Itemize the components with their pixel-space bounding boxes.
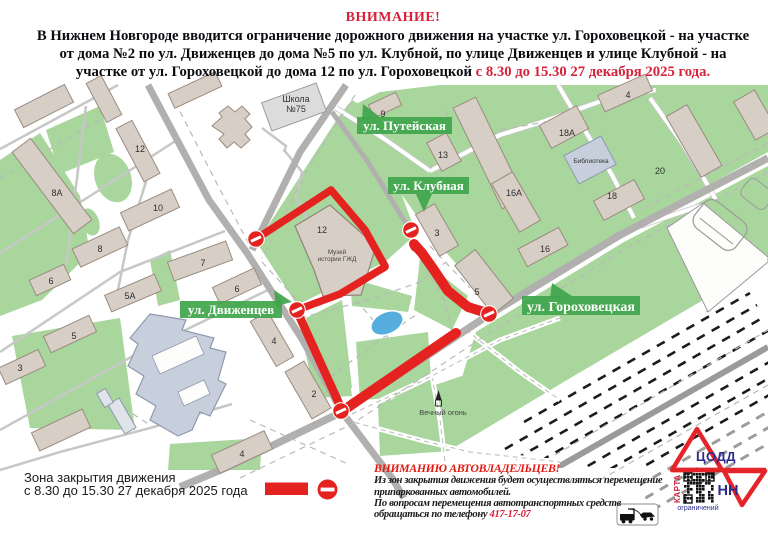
svg-text:18А: 18А bbox=[559, 128, 575, 138]
svg-text:20: 20 bbox=[655, 166, 665, 176]
svg-text:4: 4 bbox=[625, 90, 630, 100]
svg-text:ул. Движенцев: ул. Движенцев bbox=[188, 302, 274, 317]
svg-text:4: 4 bbox=[271, 336, 276, 346]
svg-text:8А: 8А bbox=[51, 188, 62, 198]
svg-text:ул. Гороховецкая: ул. Гороховецкая bbox=[527, 300, 635, 315]
svg-text:6: 6 bbox=[234, 284, 239, 294]
svg-text:Музей: Музей bbox=[328, 248, 347, 256]
svg-text:НН: НН bbox=[718, 483, 739, 499]
svg-text:4: 4 bbox=[239, 449, 244, 459]
svg-text:5: 5 bbox=[474, 287, 479, 297]
svg-text:12: 12 bbox=[135, 144, 145, 154]
svg-text:5А: 5А bbox=[124, 291, 135, 301]
svg-text:3: 3 bbox=[17, 363, 22, 373]
svg-text:12: 12 bbox=[317, 225, 327, 235]
svg-text:ул. Клубная: ул. Клубная bbox=[393, 178, 464, 193]
svg-text:3: 3 bbox=[434, 228, 439, 238]
svg-text:Вечный огонь: Вечный огонь bbox=[419, 408, 467, 417]
svg-text:13: 13 bbox=[438, 150, 448, 160]
svg-text:5: 5 bbox=[71, 331, 76, 341]
svg-text:истории ГЖД: истории ГЖД bbox=[318, 256, 357, 263]
svg-text:16А: 16А bbox=[506, 188, 522, 198]
svg-text:Библиотека: Библиотека bbox=[573, 157, 609, 165]
svg-text:Школа: Школа bbox=[282, 94, 309, 104]
svg-text:18: 18 bbox=[607, 191, 617, 201]
svg-text:6: 6 bbox=[48, 276, 53, 286]
svg-text:10: 10 bbox=[153, 203, 163, 213]
svg-text:ЦОДД: ЦОДД bbox=[696, 449, 736, 464]
svg-text:7: 7 bbox=[200, 258, 205, 268]
svg-text:2: 2 bbox=[311, 389, 316, 399]
svg-text:8: 8 bbox=[97, 244, 102, 254]
svg-text:№75: №75 bbox=[286, 104, 306, 114]
svg-text:16: 16 bbox=[540, 244, 550, 254]
svg-text:ул. Путейская: ул. Путейская bbox=[363, 118, 446, 133]
